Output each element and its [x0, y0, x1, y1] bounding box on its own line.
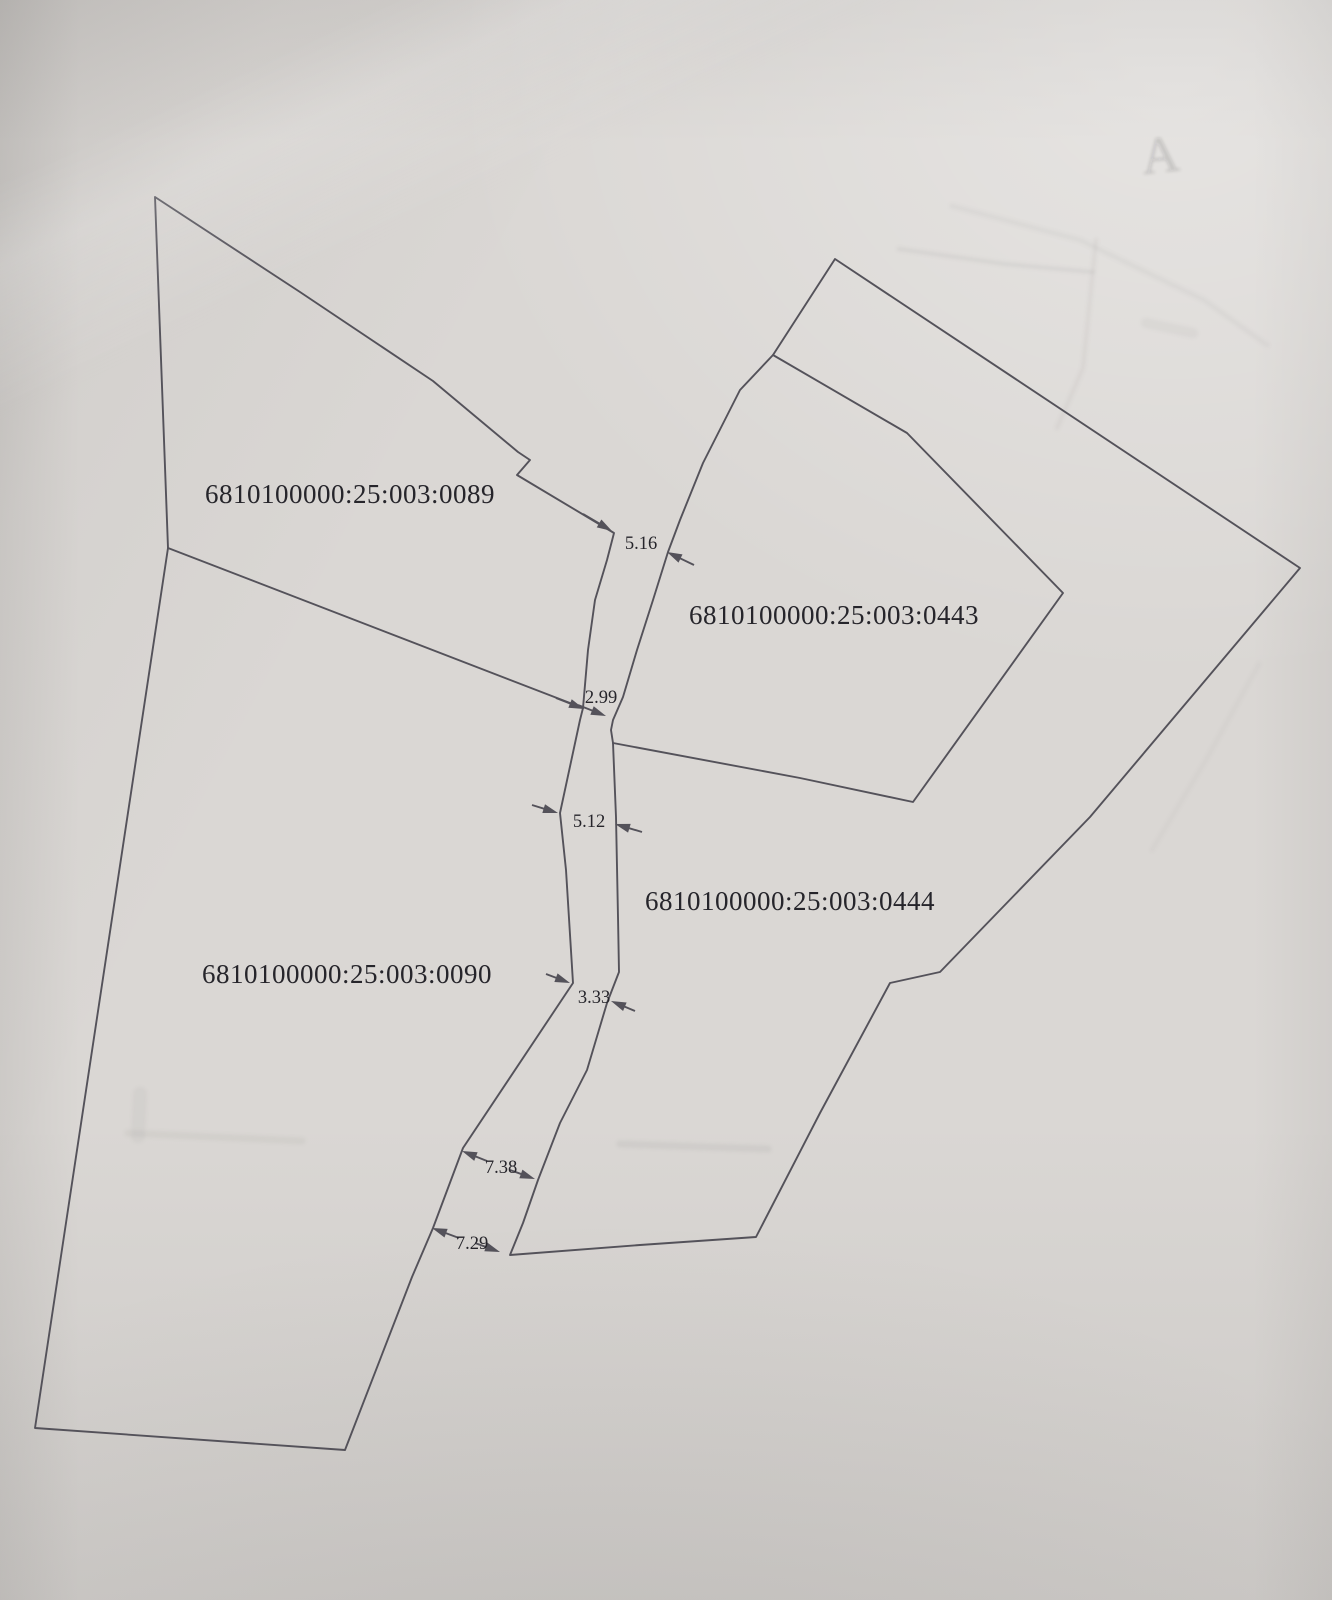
paper-bleedthrough-ghosts: A	[128, 125, 1267, 1149]
ghost-mark	[899, 249, 1093, 272]
right-block-outline	[510, 259, 1300, 1255]
ghost-mark	[620, 1144, 768, 1149]
dimension-value: 7.29	[456, 1234, 488, 1254]
ghost-mark	[1152, 664, 1259, 850]
ghost-mark	[138, 1094, 140, 1136]
dimension-value: 5.16	[625, 534, 657, 554]
ghost-mark	[952, 206, 1267, 345]
dimension-value: 2.99	[585, 688, 617, 708]
dimension-arrowhead	[542, 804, 558, 813]
dimension-value: 5.12	[573, 812, 605, 832]
ghost-mark	[128, 1133, 302, 1141]
dimension-7.29: 7.29	[432, 1228, 500, 1254]
parcel-label-0443: 6810100000:25:003:0443	[689, 600, 979, 630]
dimension-2.99: 2.99	[556, 688, 617, 716]
dimension-5.12: 5.12	[532, 804, 642, 832]
dimension-arrowhead	[615, 824, 631, 833]
boundary-0443-0444	[613, 355, 1063, 802]
parcel-label-0089: 6810100000:25:003:0089	[205, 479, 495, 509]
dimension-value: 3.33	[578, 988, 610, 1008]
dimension-arrowhead	[597, 519, 612, 531]
dimension-arrowhead	[432, 1228, 448, 1238]
dimension-arrowhead	[462, 1151, 478, 1161]
parcel-map-drawing: A5.162.995.123.337.387.296810100000:25:0…	[0, 0, 1332, 1600]
dimension-5.16: 5.16	[583, 514, 694, 565]
ghost-mark	[1146, 323, 1193, 333]
parcel-label-0090: 6810100000:25:003:0090	[202, 959, 492, 989]
left-block-outline	[35, 197, 614, 1450]
dimension-3.33: 3.33	[546, 973, 635, 1011]
dimension-7.38: 7.38	[462, 1151, 535, 1179]
boundary-0089-0090	[168, 548, 583, 708]
parcel-label-0444: 6810100000:25:003:0444	[645, 886, 935, 916]
scanned-cadastral-plan-photo: A5.162.995.123.337.387.296810100000:25:0…	[0, 0, 1332, 1600]
dimension-arrowhead	[611, 1001, 627, 1011]
dimension-arrowhead	[568, 699, 584, 709]
dimension-arrowhead	[519, 1170, 535, 1179]
dimension-value: 7.38	[485, 1158, 517, 1178]
ghost-letter: A	[1139, 125, 1183, 186]
dimension-arrowhead	[554, 973, 570, 983]
dimension-arrowhead	[667, 552, 683, 563]
